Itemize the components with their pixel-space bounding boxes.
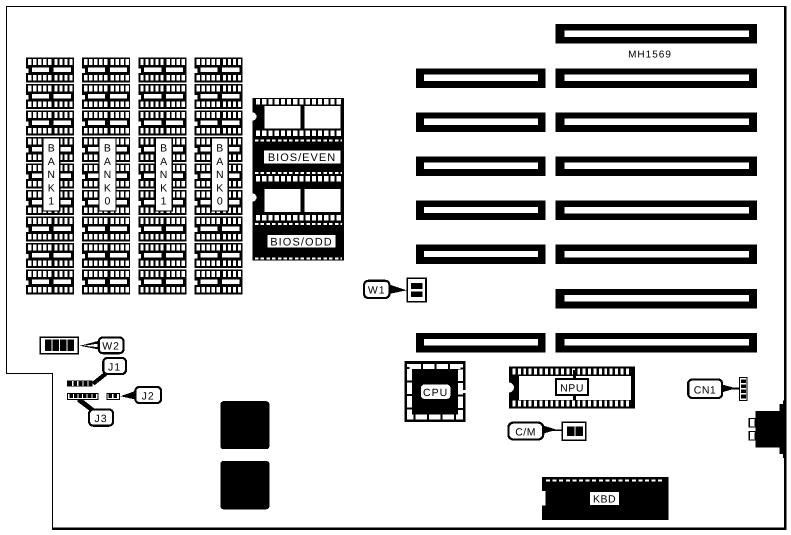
svg-text:BIOS/EVEN: BIOS/EVEN <box>268 152 336 164</box>
svg-text:K: K <box>104 182 111 194</box>
svg-text:A: A <box>104 156 111 168</box>
svg-text:B: B <box>48 143 55 155</box>
svg-text:CPU: CPU <box>423 387 448 399</box>
svg-text:1: 1 <box>48 196 54 208</box>
svg-text:NPU: NPU <box>560 383 584 395</box>
svg-text:J2: J2 <box>142 390 155 402</box>
svg-text:N: N <box>216 169 224 181</box>
svg-text:J1: J1 <box>108 361 121 373</box>
svg-text:K: K <box>216 182 223 194</box>
svg-text:K: K <box>48 182 55 194</box>
svg-text:0: 0 <box>217 196 223 208</box>
svg-text:BIOS/ODD: BIOS/ODD <box>270 236 333 248</box>
svg-text:C/M: C/M <box>515 427 536 439</box>
svg-text:N: N <box>47 169 55 181</box>
svg-text:B: B <box>160 143 167 155</box>
svg-text:MH1569: MH1569 <box>628 50 672 61</box>
svg-text:N: N <box>160 169 168 181</box>
svg-text:J3: J3 <box>94 413 107 425</box>
svg-text:K: K <box>160 182 167 194</box>
svg-text:A: A <box>48 156 55 168</box>
svg-text:0: 0 <box>104 196 110 208</box>
svg-text:KBD: KBD <box>593 494 616 506</box>
svg-text:A: A <box>160 156 167 168</box>
svg-text:W2: W2 <box>102 341 120 353</box>
svg-text:N: N <box>104 169 112 181</box>
svg-text:B: B <box>216 143 223 155</box>
svg-text:1: 1 <box>161 196 167 208</box>
svg-text:CN1: CN1 <box>694 384 717 396</box>
svg-text:A: A <box>216 156 223 168</box>
svg-text:B: B <box>104 143 111 155</box>
svg-text:W1: W1 <box>368 285 386 297</box>
